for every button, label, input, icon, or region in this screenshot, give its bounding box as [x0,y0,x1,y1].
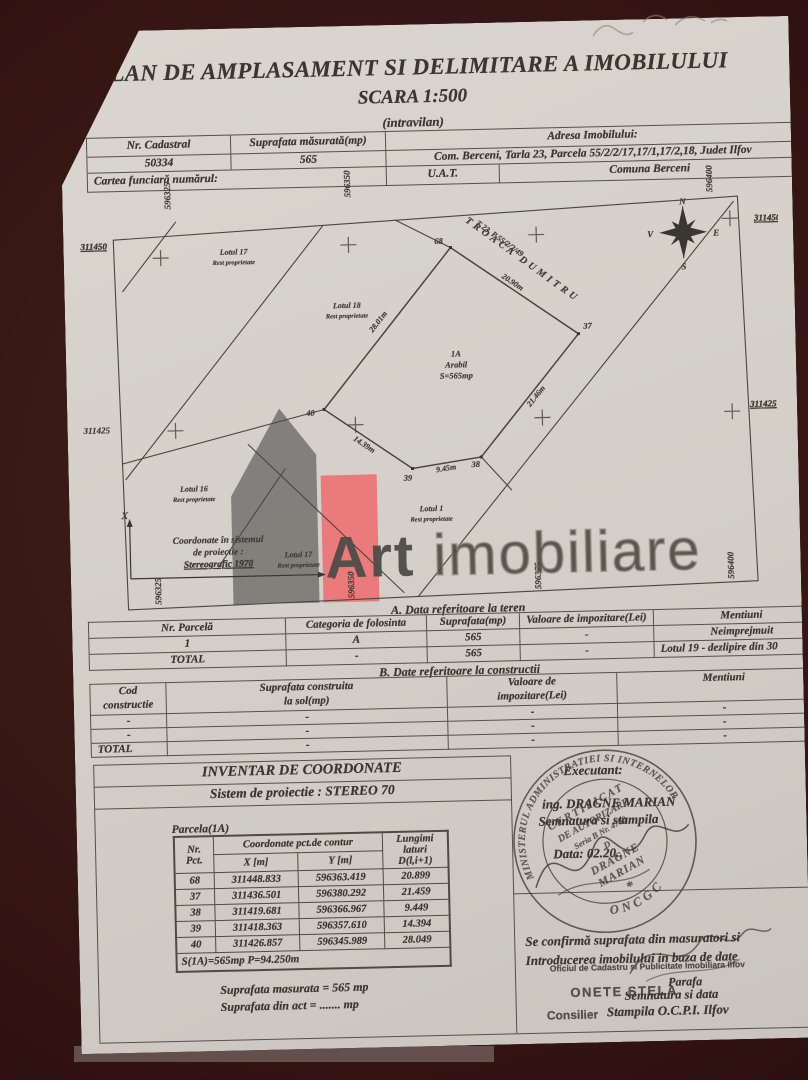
divider [93,765,100,1043]
svg-text:TROACA DUMITRU: TROACA DUMITRU [463,215,582,305]
svg-text:311450: 311450 [753,212,781,223]
ocpi-stamp-role: Consilier [547,1007,599,1022]
svg-text:Lotul 16: Lotul 16 [179,484,208,494]
table-cell: Lotul 19 - dezlipire din 30 [654,638,808,658]
svg-text:Rest proprietate: Rest proprietate [276,562,320,570]
x-axis-label: X [120,511,128,522]
svg-text:S=565mp: S=565mp [440,370,473,381]
neighbor-parcel-labels: T 23, P 55/2/2/49 TROACA DUMITRU [463,213,582,308]
measured-area-line: Suprafata masurata = 565 mp [220,980,369,998]
svg-text:Stereografic 1970: Stereografic 1970 [184,559,254,571]
svg-text:Lotul 18: Lotul 18 [332,301,361,311]
table-cell: TOTAL [92,742,168,758]
coordinates-table: Nr. Pct. Coordonate pct.de contur Lungim… [173,830,452,973]
compass-w: V [647,229,654,239]
watermark-art: Art [325,523,416,590]
svg-text:9.45m: 9.45m [435,462,456,474]
compass-s: S [681,261,686,271]
svg-text:68: 68 [434,236,443,246]
deed-area-line: Suprafata din act = ....... mp [220,997,358,1015]
confirmation-signature [619,918,781,992]
svg-text:Lotul 17: Lotul 17 [283,550,313,560]
col-header: Mentiuni [617,668,808,704]
svg-text:Rest proprietate: Rest proprietate [211,259,255,267]
svg-text:Lotul 17: Lotul 17 [219,247,249,257]
table-cell: 565 [428,645,521,663]
svg-text:38: 38 [470,459,480,469]
svg-text:37: 37 [582,320,592,330]
ocpi-stamp-label: Stampila O.C.P.I. Ilfov [607,1001,729,1020]
svg-text:311425: 311425 [82,425,110,436]
svg-text:39: 39 [403,472,413,482]
svg-text:311425: 311425 [749,398,777,409]
divider [99,1026,808,1043]
svg-text:Rest proprietate: Rest proprietate [325,312,369,320]
svg-text:1A: 1A [451,348,461,358]
col-header: Nr. Pct. [174,836,214,873]
col-header: Valoare de impozitare(Lei) [447,673,618,708]
agency-watermark: Art imobiliare [325,516,703,592]
col-header: Y [m] [298,851,383,871]
compass-n: N [678,196,686,206]
svg-text:Arabil: Arabil [444,359,468,370]
scanned-document: PLAN DE AMPLASAMENT SI DELIMITARE A IMOB… [59,16,808,1054]
watermark-imobiliare: imobiliare [415,517,703,588]
svg-text:596350: 596350 [342,170,353,198]
svg-text:596400: 596400 [704,165,715,193]
svg-text:de proiectie :: de proiectie : [193,547,244,558]
col-header: X [m] [214,853,298,873]
executant-signature [526,784,714,903]
compass-rose: N E S V [646,195,720,272]
table-cell: - [521,642,655,661]
svg-text:Lotul 1: Lotul 1 [418,504,443,514]
svg-text:311450: 311450 [79,241,107,252]
col-header: Cod constructie [90,683,167,716]
table-cell: - [287,647,428,666]
svg-text:596325: 596325 [153,577,164,605]
col-header: Lungimi laturi D(l,i+1) [382,831,448,869]
svg-text:Coordonate în sistemul: Coordonate în sistemul [173,535,264,547]
handwriting-scribble [585,10,735,50]
svg-text:596325: 596325 [162,182,173,210]
grid-crosses [152,210,743,439]
svg-text:Rest proprietate: Rest proprietate [172,496,216,504]
compass-e: E [712,227,719,237]
svg-text:596400: 596400 [725,551,736,579]
svg-text:40: 40 [305,408,315,418]
